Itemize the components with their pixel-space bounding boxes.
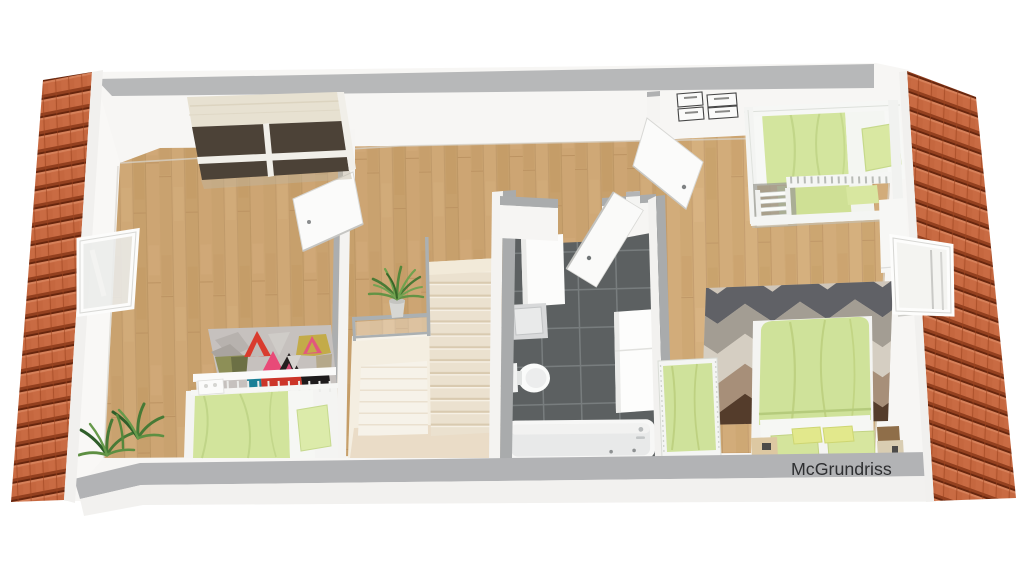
svg-text:McGrundriss: McGrundriss	[791, 459, 892, 479]
